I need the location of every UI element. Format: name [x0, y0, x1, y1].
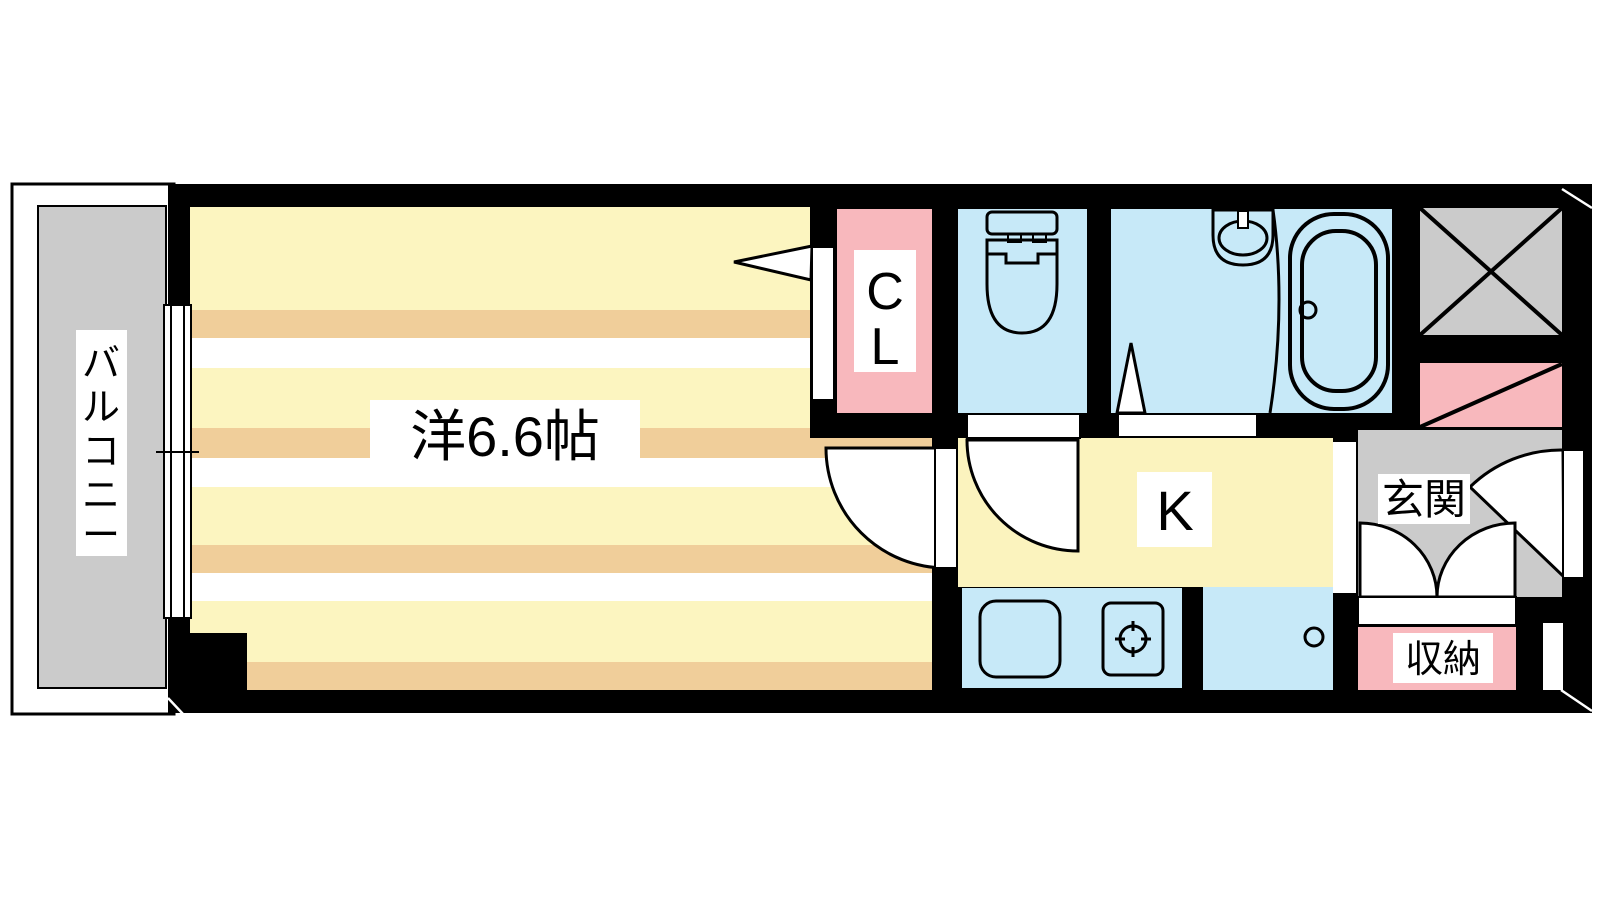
floorplan-drawing: 洋6.6帖 C L [0, 0, 1600, 900]
floor-stripe-tan [190, 545, 932, 573]
closet-label-l: L [871, 318, 900, 376]
entrance-label: 玄関 [1382, 476, 1466, 523]
closet-label-c: C [866, 263, 904, 321]
balcony-label-char: ニ [82, 475, 120, 517]
entrance-opening [1333, 442, 1356, 593]
floor-stripe-tan [190, 662, 932, 690]
diagonal-storage-box [1420, 363, 1562, 427]
balcony-label-char: ー [82, 515, 120, 557]
floor-stripe-white [190, 573, 932, 601]
storage-label: 収納 [1405, 639, 1481, 681]
x-shaft-icon [1420, 208, 1562, 335]
balcony-label-char: コ [82, 431, 120, 473]
floorplan-page: 洋6.6帖 C L [0, 0, 1600, 900]
washer-space [1203, 587, 1333, 690]
room-label: 洋6.6帖 [410, 405, 600, 468]
bathroom [1111, 209, 1392, 413]
balcony-label-char: バ [82, 343, 120, 385]
kitchen-label: K [1156, 479, 1193, 542]
wall-slot [1543, 623, 1563, 690]
balcony-label-char: ル [82, 387, 120, 429]
